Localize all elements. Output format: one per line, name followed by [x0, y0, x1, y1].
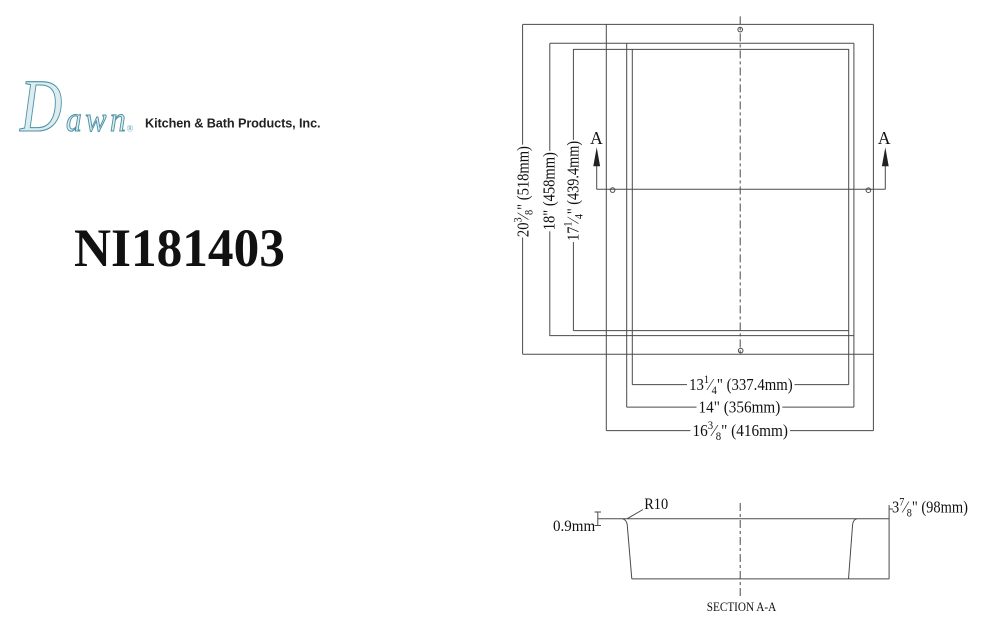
- svg-text:0.9mm: 0.9mm: [553, 518, 595, 536]
- svg-text:®: ®: [127, 124, 134, 134]
- svg-text:Kitchen & Bath Products, Inc.: Kitchen & Bath Products, Inc.: [145, 117, 320, 131]
- svg-text:171⁄4" (439.4mm): 171⁄4" (439.4mm): [562, 141, 586, 241]
- svg-text:203⁄8" (518mm): 203⁄8" (518mm): [512, 146, 536, 237]
- svg-text:D: D: [19, 64, 62, 148]
- svg-text:131⁄4" (337.4mm): 131⁄4" (337.4mm): [689, 373, 793, 397]
- svg-text:163⁄8" (416mm): 163⁄8" (416mm): [693, 419, 788, 443]
- svg-text:R10: R10: [644, 496, 668, 514]
- svg-text:awn: awn: [66, 101, 129, 140]
- svg-text:18" (458mm): 18" (458mm): [541, 152, 559, 230]
- svg-text:SECTION A-A: SECTION A-A: [707, 599, 777, 614]
- svg-text:A: A: [878, 128, 891, 148]
- svg-text:A: A: [590, 128, 603, 148]
- svg-text:37⁄8" (98mm): 37⁄8" (98mm): [892, 496, 968, 520]
- svg-text:NI181403: NI181403: [74, 219, 285, 278]
- svg-text:14" (356mm): 14" (356mm): [699, 399, 781, 417]
